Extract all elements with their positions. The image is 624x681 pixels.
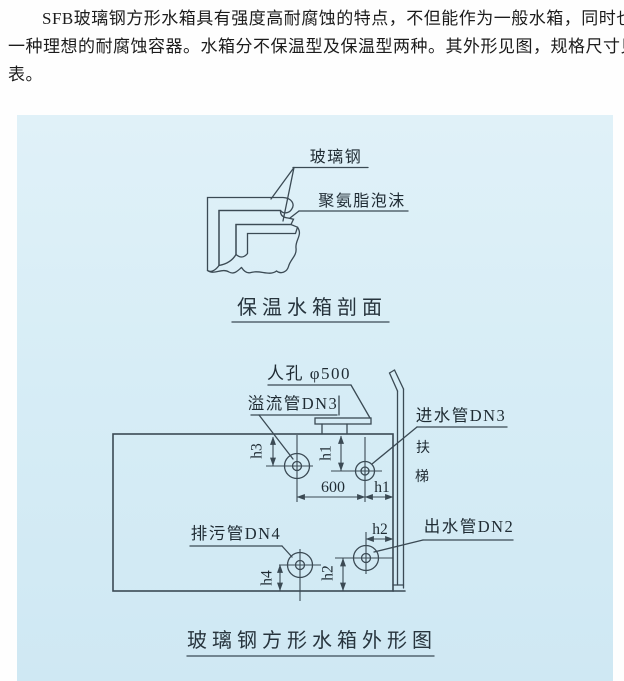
insulated-tank-section-diagram: 玻璃钢 聚氨脂泡沫 保温水箱剖面 [208, 148, 409, 322]
ladder [390, 370, 404, 588]
h1-horizontal-dim-label: h1 [374, 479, 390, 496]
h2-vertical-dim-label: h2 [320, 565, 337, 581]
foam-layer [219, 211, 294, 266]
ladder-hook-cap [390, 370, 395, 373]
foam-label: 聚氨脂泡沫 [318, 192, 406, 210]
h3-dim-label: h3 [249, 443, 266, 459]
outline-caption: 玻璃钢方形水箱外形图 [187, 629, 437, 652]
fiberglass-inner-layer [236, 225, 298, 258]
ladder-label-char1: 扶 [416, 440, 430, 456]
fiberglass-outer-layer [208, 198, 294, 272]
ladder-hook-inner [390, 373, 398, 391]
foam-leader [290, 211, 299, 218]
h1-vertical-dim-label: h1 [318, 445, 335, 461]
outlet-leader [374, 540, 423, 552]
manhole-cover [315, 418, 371, 424]
manhole-leader [351, 385, 370, 418]
drain-leader [282, 546, 292, 557]
overflow-pipe-label: 溢流管DN3 [248, 394, 339, 413]
dim-600-label: 600 [321, 479, 345, 496]
manhole-label: 人孔 φ500 [267, 364, 351, 383]
section-caption: 保温水箱剖面 [237, 296, 387, 319]
figure-artwork: 玻璃钢 聚氨脂泡沫 保温水箱剖面 人孔 φ500 溢流管DN3 [0, 0, 624, 681]
drain-pipe-label: 排污管DN4 [191, 524, 282, 543]
inlet-leader [372, 427, 417, 464]
leg-bottom-break-line [208, 268, 242, 273]
ladder-label-char2: 梯 [415, 469, 429, 485]
fiberglass-label: 玻璃钢 [310, 148, 363, 166]
inlet-pipe-label: 进水管DN3 [416, 406, 507, 425]
h2-horizontal-dim-label: h2 [372, 521, 388, 538]
h4-dim-label: h4 [259, 570, 276, 586]
tank-outline-diagram: 人孔 φ500 溢流管DN3 h3 h1 [113, 364, 514, 656]
outlet-pipe-label: 出水管DN2 [424, 517, 515, 536]
